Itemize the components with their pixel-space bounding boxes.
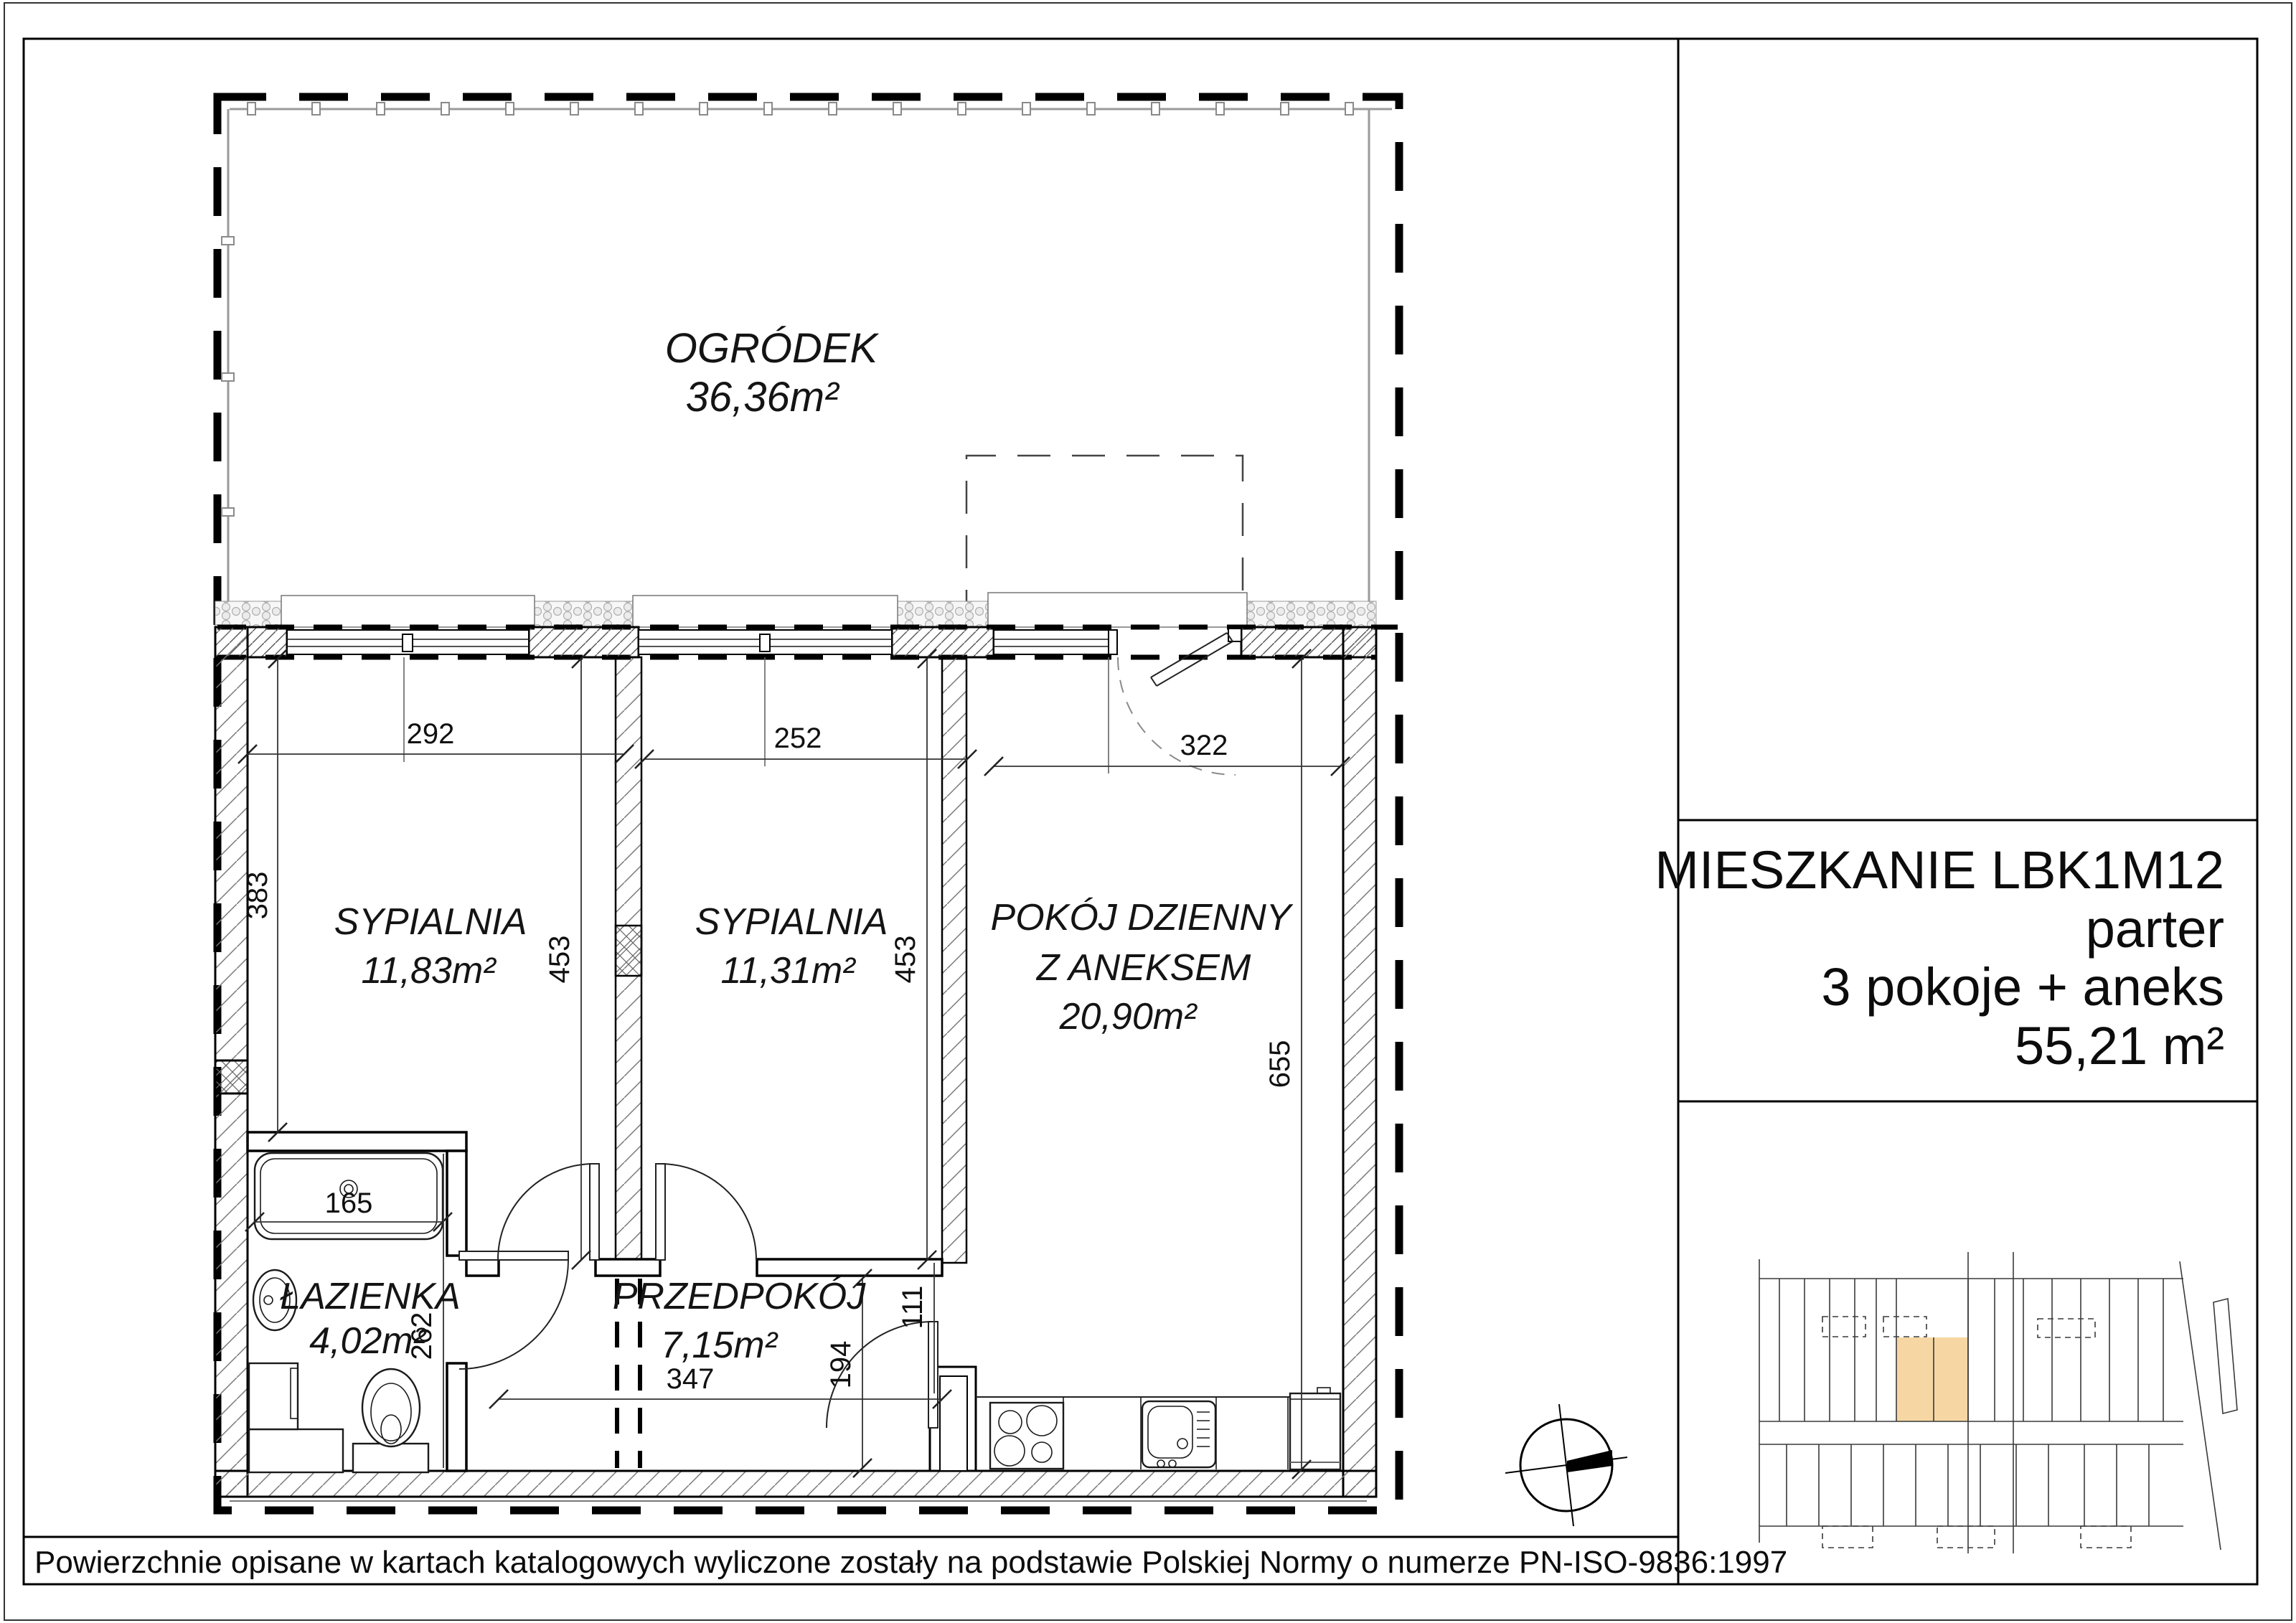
dim-living-depth: 655 — [1264, 1040, 1296, 1088]
dim-living-wall-segment: 111 — [897, 1286, 928, 1330]
kitchen-sink — [1142, 1401, 1215, 1467]
dim-hallway-width: 347 — [667, 1363, 715, 1395]
hallway-area: 7,15m² — [661, 1325, 778, 1366]
unit-highlight — [1896, 1337, 1968, 1421]
apartment-id: MIESZKANIE LBK1M12 — [1655, 840, 2224, 900]
dim-bedroom1-width: 292 — [407, 718, 455, 750]
window-bedroom2 — [639, 630, 892, 654]
footer-bar: Powierzchnie opisane w kartach katalogow… — [34, 1545, 1787, 1580]
dim-bedroom2-depth: 453 — [890, 936, 921, 984]
column-left — [215, 1060, 248, 1093]
living-name-line2: Z ANEKSEM — [1035, 947, 1251, 989]
window-living — [994, 630, 1117, 654]
dim-bedroom1-depth: 453 — [544, 936, 575, 984]
window-bedroom1 — [287, 630, 529, 654]
dim-bedroom2-width: 252 — [774, 723, 822, 754]
total-area-label: 55,21 m² — [2015, 1016, 2224, 1076]
dim-hallway-door-depth: 194 — [825, 1341, 857, 1389]
floor-label: parter — [2086, 899, 2224, 959]
dim-bathtub-length: 165 — [325, 1187, 373, 1219]
wall-living-divider — [942, 657, 966, 1263]
bedroom2-name: SYPIALNIA — [695, 901, 888, 943]
footer-note: Powierzchnie opisane w kartach katalogow… — [34, 1545, 1787, 1580]
wall-bathroom-top — [248, 1132, 466, 1151]
tall-cabinet — [1290, 1388, 1340, 1469]
stove — [990, 1403, 1063, 1469]
garden-name: OGRÓDEK — [665, 325, 880, 372]
living-name-line1: POKÓJ DZIENNY — [991, 897, 1294, 938]
dim-bedroom1-left-depth: 383 — [242, 872, 273, 920]
bedroom1-area: 11,83m² — [362, 950, 497, 992]
bedroom1-name: SYPIALNIA — [334, 901, 527, 943]
layout-label: 3 pokoje + aneks — [1821, 957, 2224, 1017]
bedroom2-area: 11,31m² — [721, 950, 857, 992]
hallway-name: PRZEDPOKÓJ — [613, 1276, 866, 1317]
wall-bottom — [215, 1471, 1376, 1497]
dim-living-width: 322 — [1180, 730, 1228, 761]
bathroom-area: 4,02m² — [309, 1320, 427, 1362]
living-area: 20,90m² — [1059, 996, 1198, 1038]
floor-plan-sheet: OGRÓDEK 36,36m² — [0, 0, 2296, 1623]
garden-area-value: 36,36m² — [686, 374, 840, 420]
bathroom-name: ŁAZIENKA — [280, 1276, 460, 1317]
